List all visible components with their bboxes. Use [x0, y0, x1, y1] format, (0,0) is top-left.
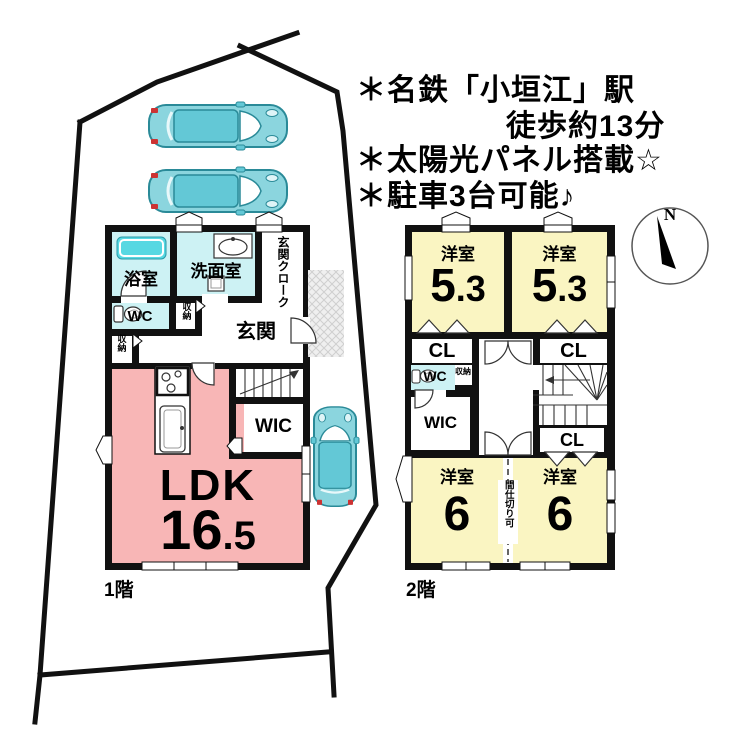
- label-floor2: 2階: [406, 578, 470, 602]
- note-walk: 徒歩約13分: [506, 112, 665, 142]
- label-bed1-size: 5.3: [412, 262, 504, 320]
- wall-below-wic: [236, 452, 303, 459]
- label-ldk-size: 16.5: [112, 502, 304, 564]
- label-cl-c: CL: [540, 429, 604, 450]
- compass-north-label: N: [658, 204, 682, 224]
- label-bed3-size: 6: [411, 486, 503, 544]
- wall-below-stairs: [236, 397, 303, 404]
- entrance-porch-hatch: [308, 270, 344, 357]
- label-wc-1f: WC: [112, 305, 168, 327]
- label-entrance-cloak: 玄関 クローク: [264, 236, 302, 310]
- label-floor1: 1階: [104, 578, 168, 602]
- label-storage-b: 収納: [113, 334, 129, 364]
- label-bed3: 洋室: [411, 466, 503, 488]
- car-icon-2: [149, 167, 287, 215]
- wall-stairs-2f: [533, 390, 539, 425]
- label-bath: 浴室: [112, 268, 170, 290]
- hall-1f: [139, 336, 203, 363]
- label-entrance: 玄関: [210, 320, 302, 344]
- car-icon-3: [311, 407, 359, 506]
- label-storage-2f: 収納: [453, 366, 473, 378]
- floorplan-page: ＊名鉄「小垣江」駅 徒歩約13分 ＊太陽光パネル搭載☆ ＊駐車3台可能♪ N 浴…: [0, 0, 740, 753]
- label-bed4-size: 6: [513, 486, 607, 544]
- car-icon-1: [149, 102, 287, 150]
- label-wic-2f: WIC: [411, 411, 470, 433]
- label-wic-1f: WIC: [244, 414, 303, 438]
- stairs-2f-area: [533, 365, 607, 425]
- label-bed4: 洋室: [513, 466, 607, 488]
- label-partition: 間仕切り可: [498, 480, 518, 544]
- label-washroom: 洗面室: [177, 260, 255, 282]
- label-cl-a: CL: [412, 340, 472, 362]
- label-cl-b: CL: [540, 340, 607, 362]
- label-bed2-size: 5.3: [512, 262, 607, 320]
- note-station: ＊名鉄「小垣江」駅: [356, 76, 635, 106]
- label-wc-2f: WC: [413, 366, 457, 386]
- wall-stairs-left: [229, 363, 236, 459]
- stairs-1f-area: [236, 369, 303, 397]
- note-solar: ＊太陽光パネル搭載☆: [356, 146, 663, 176]
- label-storage-a: 収納: [178, 302, 194, 330]
- hall-2f: [479, 339, 533, 455]
- note-parking: ＊駐車3台可能♪: [356, 182, 576, 212]
